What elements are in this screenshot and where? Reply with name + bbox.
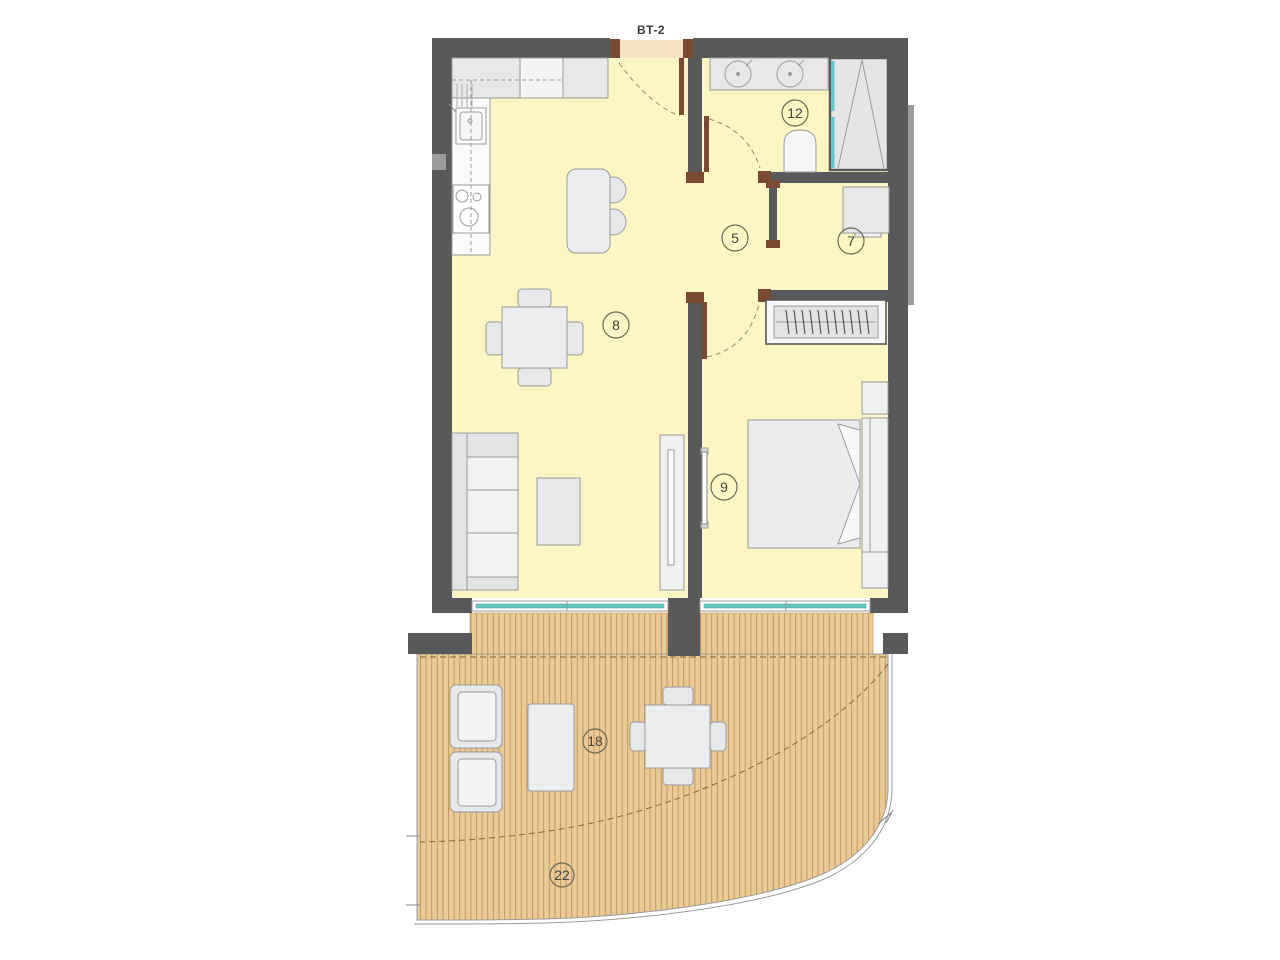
sink-2-drain bbox=[789, 73, 792, 76]
sofa-seats bbox=[467, 457, 518, 577]
bedroom-door-leaf bbox=[702, 302, 707, 359]
room-number-living: 8 bbox=[612, 317, 620, 333]
wall-divider-lower bbox=[688, 292, 702, 598]
terrace-chair-right bbox=[710, 722, 726, 751]
entrance-threshold bbox=[620, 40, 683, 58]
dining-chair-right bbox=[566, 322, 583, 355]
bathroom-door-leaf bbox=[704, 116, 709, 172]
room-number-bathroom: 12 bbox=[787, 105, 803, 121]
dining-chair-bottom bbox=[518, 368, 551, 386]
toilet bbox=[784, 130, 816, 172]
wall-right bbox=[888, 58, 908, 613]
storage-appliance-lip bbox=[855, 233, 881, 237]
storage-appliance bbox=[843, 187, 889, 233]
breakfast-bar-table bbox=[567, 169, 610, 253]
bed-headboard bbox=[862, 418, 888, 552]
terrace-side-table bbox=[528, 704, 574, 791]
cap-storage-bottom bbox=[766, 240, 780, 248]
entrance-jamb-right bbox=[683, 39, 693, 58]
entrance-jamb-left bbox=[610, 39, 620, 58]
glass-pane-right bbox=[704, 604, 866, 608]
shower-glass-1 bbox=[831, 61, 835, 111]
sink-1-drain bbox=[737, 73, 740, 76]
room-number-bedroom: 9 bbox=[720, 479, 728, 495]
wall-bottom-left-stub bbox=[432, 598, 472, 613]
shower-glass-2 bbox=[831, 117, 835, 168]
dining-chair-left bbox=[486, 322, 503, 355]
floor-plan-page: BT-2 5 7 8 9 12 18 22 bbox=[0, 0, 1280, 960]
terrace-chair-left bbox=[630, 722, 646, 751]
coffee-table bbox=[537, 478, 580, 545]
glass-pane-left bbox=[476, 604, 664, 608]
room-number-storage: 7 bbox=[847, 233, 855, 249]
storage-room bbox=[843, 187, 889, 237]
wall-terrace-stub-left bbox=[408, 633, 472, 654]
cap-storage-top bbox=[766, 180, 780, 188]
deck-strip-left bbox=[470, 613, 668, 654]
lounge-chair-2-cushion bbox=[458, 759, 496, 806]
wall-top-right bbox=[693, 38, 908, 58]
wall-outer-strip-right bbox=[908, 105, 914, 305]
stove-burner-2 bbox=[473, 193, 481, 201]
tv-sideboard-slit bbox=[668, 450, 674, 565]
cap-divider-upper bbox=[686, 172, 704, 183]
unit-label: BT-2 bbox=[637, 23, 665, 37]
terrace-chair-bottom bbox=[663, 767, 693, 785]
wall-bottom-right-stub bbox=[870, 598, 908, 613]
dining-chair-top bbox=[518, 289, 551, 307]
wall-top-left bbox=[432, 38, 610, 58]
stove-burner-1 bbox=[456, 190, 468, 202]
cap-divider-lower bbox=[686, 292, 704, 303]
terrace-chair-top bbox=[663, 687, 693, 705]
dining-table bbox=[502, 307, 567, 368]
nightstand-bottom bbox=[862, 552, 888, 588]
wall-storage-west bbox=[769, 185, 777, 243]
stove-burner-3 bbox=[460, 208, 478, 226]
entrance-door-leaf bbox=[679, 58, 684, 115]
deck-strip-right bbox=[700, 613, 873, 654]
terrace-dining-table bbox=[645, 705, 710, 768]
floor-plan-canvas: BT-2 5 7 8 9 12 18 22 bbox=[0, 0, 1280, 960]
room-number-terrace-upper: 18 bbox=[587, 733, 603, 749]
room-number-terrace-lower: 22 bbox=[554, 867, 570, 883]
wardrobe bbox=[766, 300, 886, 344]
nightstand-top bbox=[862, 382, 888, 414]
wall-center-pier bbox=[668, 598, 700, 656]
wall-divider-upper bbox=[688, 58, 702, 174]
wall-notch-left bbox=[432, 154, 446, 170]
room-number-hallway: 5 bbox=[731, 230, 739, 246]
bedroom-tv bbox=[702, 452, 707, 524]
lounge-chair-1-cushion bbox=[458, 692, 496, 741]
wall-left bbox=[432, 58, 452, 613]
wall-terrace-stub-right bbox=[883, 633, 908, 654]
kitchen-cabinet-mid bbox=[520, 58, 563, 98]
